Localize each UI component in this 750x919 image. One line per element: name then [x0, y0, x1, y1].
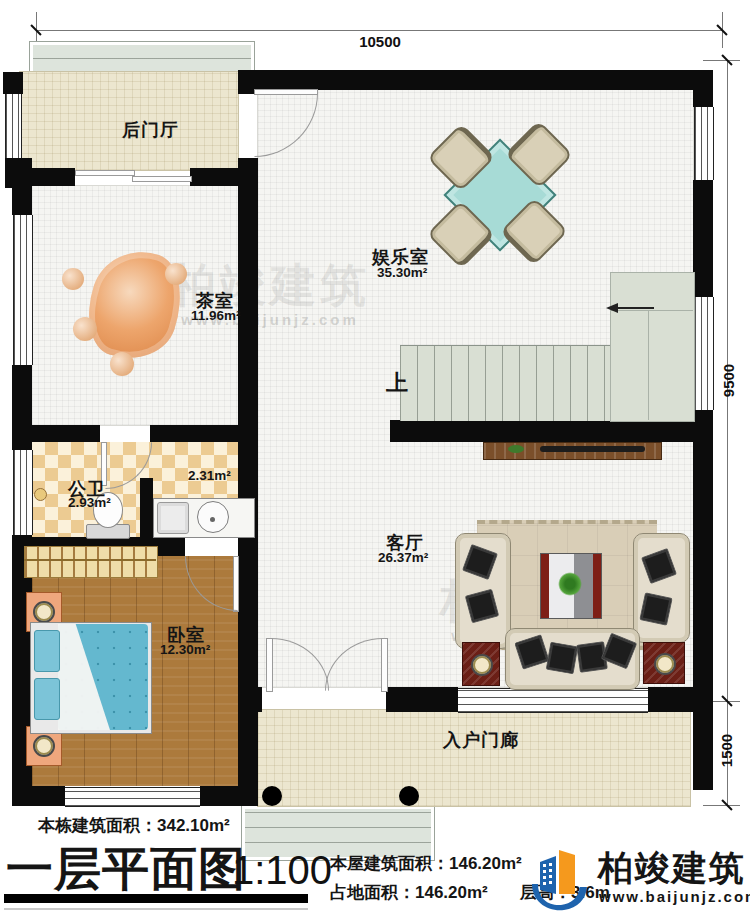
window-bedroom [65, 787, 200, 807]
window-bath-left [13, 450, 33, 535]
room-label-back-hall: 后门厅 [122, 118, 179, 142]
stairs-landing [610, 272, 695, 422]
window-backhall-left [5, 94, 22, 158]
wall-stub-backhall-left [3, 72, 23, 94]
pebble [62, 268, 84, 290]
stairs-landing-line [648, 310, 649, 420]
wall-right [693, 410, 713, 790]
stairs-arrow-head [606, 303, 618, 313]
wall-left [12, 158, 32, 215]
wardrobe [24, 546, 158, 578]
pebble [110, 352, 134, 376]
wall-tea-fun-divider [238, 158, 258, 442]
wall-bath-top [20, 425, 100, 442]
console-plant [508, 445, 524, 453]
tv-set [540, 446, 645, 452]
table-plant [558, 572, 582, 596]
porch-floor [258, 710, 690, 806]
washing-machine [157, 502, 189, 534]
room-area-bedroom: 12.30m² [160, 642, 210, 657]
total-area-text: 本栋建筑面积：342.10m² [38, 814, 230, 837]
dim-label-right-lower: 1500 [718, 721, 735, 781]
wall-bedroom-bottom [200, 786, 258, 806]
sink-drain [210, 517, 215, 522]
wall-right [693, 70, 713, 107]
wall-bedroom-bottom [12, 786, 65, 806]
sofa-pillow [639, 592, 672, 625]
dim-ext-line [703, 805, 740, 806]
brand-logo-icon [526, 842, 592, 914]
page-title: 一层平面图 [6, 838, 246, 901]
stairs-arrow-shaft [616, 307, 654, 309]
title-underline-light [4, 908, 308, 910]
wall-top [248, 70, 713, 90]
brand-name: 柏竣建筑 [598, 845, 746, 892]
title-underline [4, 894, 308, 903]
wall-backhall-bottom [12, 168, 75, 186]
window-tea-left [13, 215, 33, 365]
nightstand-knob [33, 735, 55, 757]
nightstand-knob [33, 601, 55, 623]
room-area-fun: 35.30m² [377, 265, 427, 280]
stairs-landing-line [610, 310, 693, 311]
wall-living-bottom [238, 687, 262, 712]
wall-right [693, 180, 713, 297]
stairs-up-label: 上 [386, 368, 408, 398]
sliding-door-panel [132, 176, 192, 182]
dim-ext-line [703, 60, 740, 61]
bed-pillow [34, 630, 60, 672]
floor-drain [34, 488, 47, 501]
side-table-lamp [654, 653, 676, 675]
porch-column [399, 786, 419, 806]
wall-living-bottom [648, 687, 713, 712]
room-label-porch: 入户门廊 [443, 728, 519, 752]
house-area-text: 本屋建筑面积：146.20m² [330, 852, 522, 875]
room-area-living: 26.37m² [378, 550, 428, 565]
window-right-stairs [694, 297, 714, 410]
wall-stairs-bottom [390, 420, 713, 442]
dim-line-top [36, 30, 722, 31]
window-right-upper [694, 107, 714, 180]
sliding-door-panel [75, 170, 135, 176]
bed-pillow [34, 678, 60, 720]
logo-graphic [526, 842, 592, 914]
back-steps [30, 42, 254, 76]
wall-living-bottom [386, 687, 458, 712]
pebble [165, 263, 187, 285]
dim-label-right-main: 9500 [720, 351, 737, 411]
scale-text: 1:100 [232, 848, 332, 893]
room-area-wc2: 2.31m² [188, 468, 231, 483]
stairs-treads [400, 345, 610, 421]
wardrobe-rod [24, 559, 156, 561]
wall-bath-divider [140, 478, 153, 537]
floor-plan-canvas: 10500 9500 1500 柏竣建筑 www.baijunjz.com 柏竣… [0, 0, 750, 919]
sofa-pillow [546, 642, 578, 674]
brand-site: www.baijunjz.com [599, 888, 750, 905]
room-area-wc: 2.93m² [68, 495, 111, 510]
window-living [458, 688, 648, 713]
side-table-lamp [471, 654, 493, 676]
pebble [73, 317, 97, 341]
land-area-text: 占地面积：146.20m² [330, 881, 488, 904]
room-area-tea: 11.96m² [191, 308, 241, 323]
dim-label-top: 10500 [320, 33, 440, 50]
porch-column [262, 786, 282, 806]
dim-line-right [727, 60, 728, 806]
wall-bed-porch-divider [238, 442, 258, 806]
wall-bath-top [150, 425, 238, 442]
